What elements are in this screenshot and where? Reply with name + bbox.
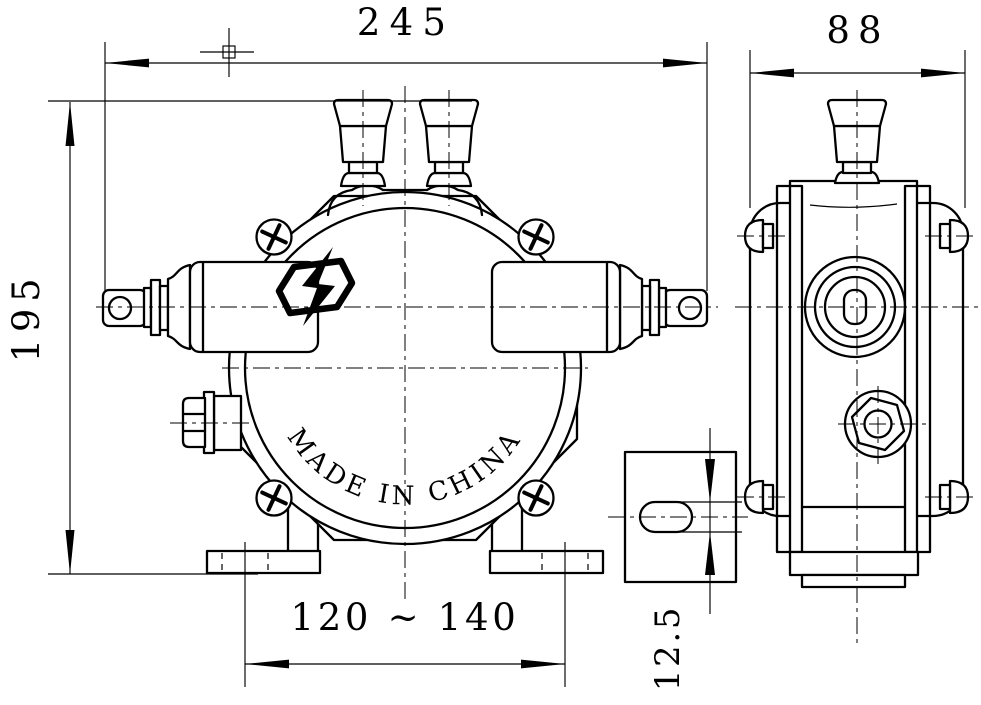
engineering-drawing-canvas: MADE IN CHINA [0, 0, 981, 705]
dim-overall-height-label: 195 [6, 262, 48, 372]
side-view [735, 90, 978, 645]
cad-origin-marker [200, 28, 254, 77]
side-body-box [790, 181, 917, 553]
mounting-foot-left-plate [207, 551, 320, 573]
cover-screw-bottom-right [519, 481, 554, 516]
gland-washer [642, 286, 650, 330]
cover-screw-bottom-left [257, 481, 292, 516]
cover-screw-top-right [519, 220, 554, 255]
detail-foot-slot-view [608, 452, 748, 582]
dim-mounting-spacing-label: 120 ~ 140 [275, 597, 535, 639]
gland-washer [160, 286, 168, 330]
side-base-plate [790, 552, 918, 575]
cover-screw-top-left [257, 220, 292, 255]
dim-foot-slot-label: 12.5 [647, 593, 689, 703]
mounting-foot-right-plate [490, 551, 603, 573]
side-base-foot [802, 575, 905, 587]
dim-depth-label: 88 [798, 10, 918, 52]
dim-overall-width-label: 245 [326, 2, 486, 44]
